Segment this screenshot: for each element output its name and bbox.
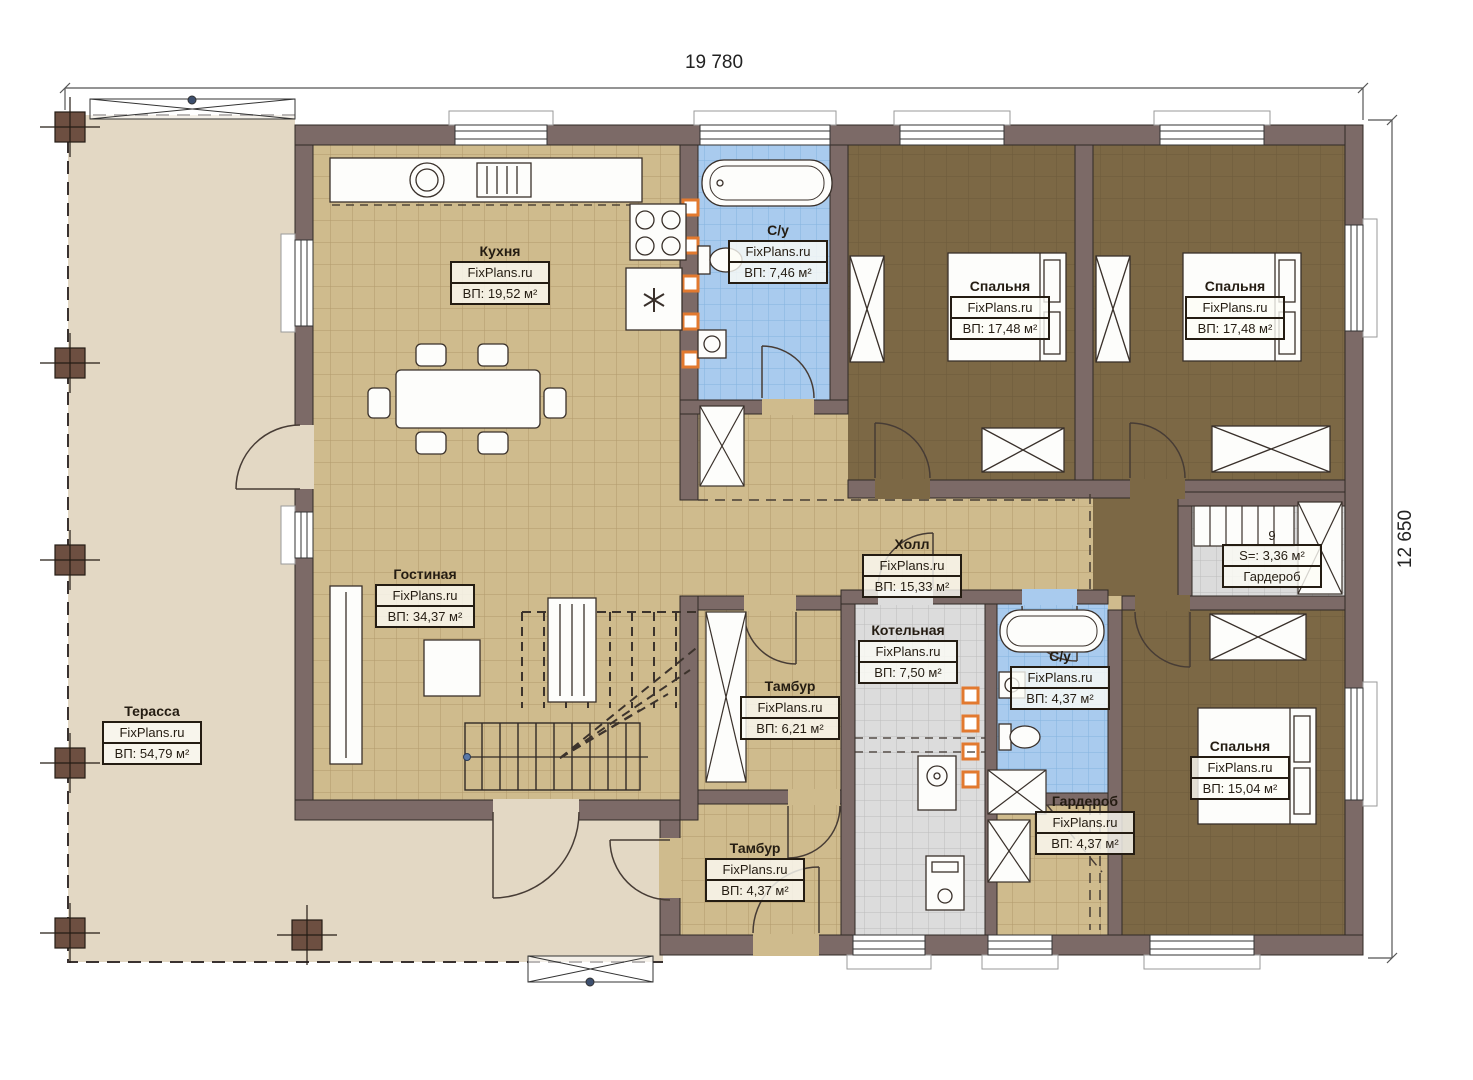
dimension-width-label: 19 780 [685,52,743,74]
wardrobe-unit [1298,502,1342,594]
floor-plan-page: 19 780 12 650 Кухня FixPlans.ru ВП: 19,5… [0,0,1473,1080]
wardrobe-unit [706,612,746,782]
canopy-symbol-bottom [528,956,653,986]
wardrobe-unit [1210,614,1306,660]
toilet [698,246,710,274]
wardrobe-unit [700,406,744,486]
wardrobe-unit [1212,426,1330,472]
dining-table [396,370,540,428]
floor-plan-drawing [0,0,1473,1080]
wardrobe-unit [988,770,1046,814]
wardrobe-unit [982,428,1064,472]
wardrobe-unit [988,820,1030,882]
toilet2 [999,724,1011,750]
kitchen-oven [477,163,531,197]
wardrobe-unit [850,256,884,362]
wardrobe-unit [1096,256,1130,362]
dimension-height-label: 12 650 [1395,510,1417,568]
coffee-table [424,640,480,696]
canopy-symbol-top [90,96,295,119]
